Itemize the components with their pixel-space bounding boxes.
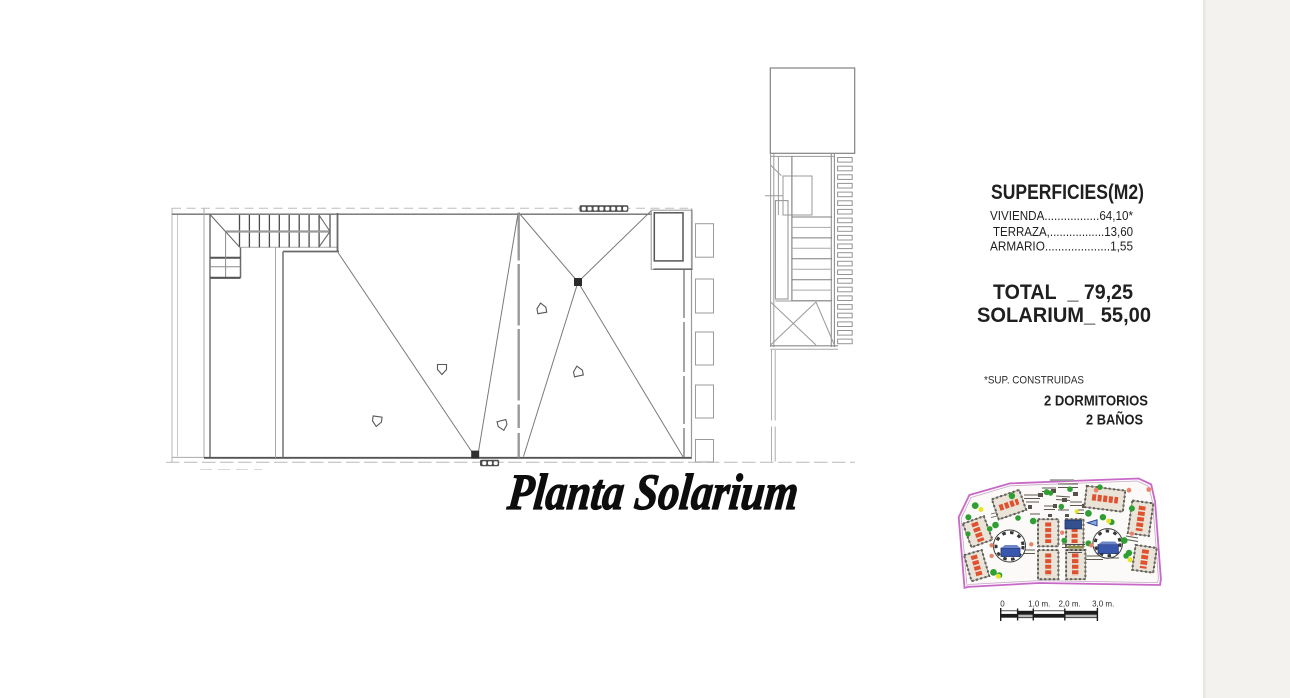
svg-text:VIVIENDA.................64,10: VIVIENDA.................64,10* <box>990 209 1133 223</box>
svg-text:TOTAL _ 79,25: TOTAL _ 79,25 <box>993 280 1133 304</box>
svg-text:2,0 m.: 2,0 m. <box>1058 600 1080 609</box>
svg-text:Planta Solarium: Planta Solarium <box>504 464 801 521</box>
svg-text:SOLARIUM_ 55,00: SOLARIUM_ 55,00 <box>977 303 1151 327</box>
svg-text:2 BAÑOS: 2 BAÑOS <box>1086 411 1143 429</box>
svg-text:0: 0 <box>1000 600 1005 609</box>
svg-text:1,0 m.: 1,0 m. <box>1028 600 1050 609</box>
svg-text:*SUP. CONSTRUIDAS: *SUP. CONSTRUIDAS <box>984 375 1084 387</box>
svg-text:ARMARIO....................1,5: ARMARIO....................1,55 <box>990 240 1133 254</box>
svg-text:TERRAZA,.................13,60: TERRAZA,.................13,60 <box>993 225 1133 239</box>
svg-text:2 DORMITORIOS: 2 DORMITORIOS <box>1044 393 1148 410</box>
svg-text:SUPERFICIES(M2): SUPERFICIES(M2) <box>991 181 1144 204</box>
svg-text:3,0 m.: 3,0 m. <box>1092 600 1114 609</box>
